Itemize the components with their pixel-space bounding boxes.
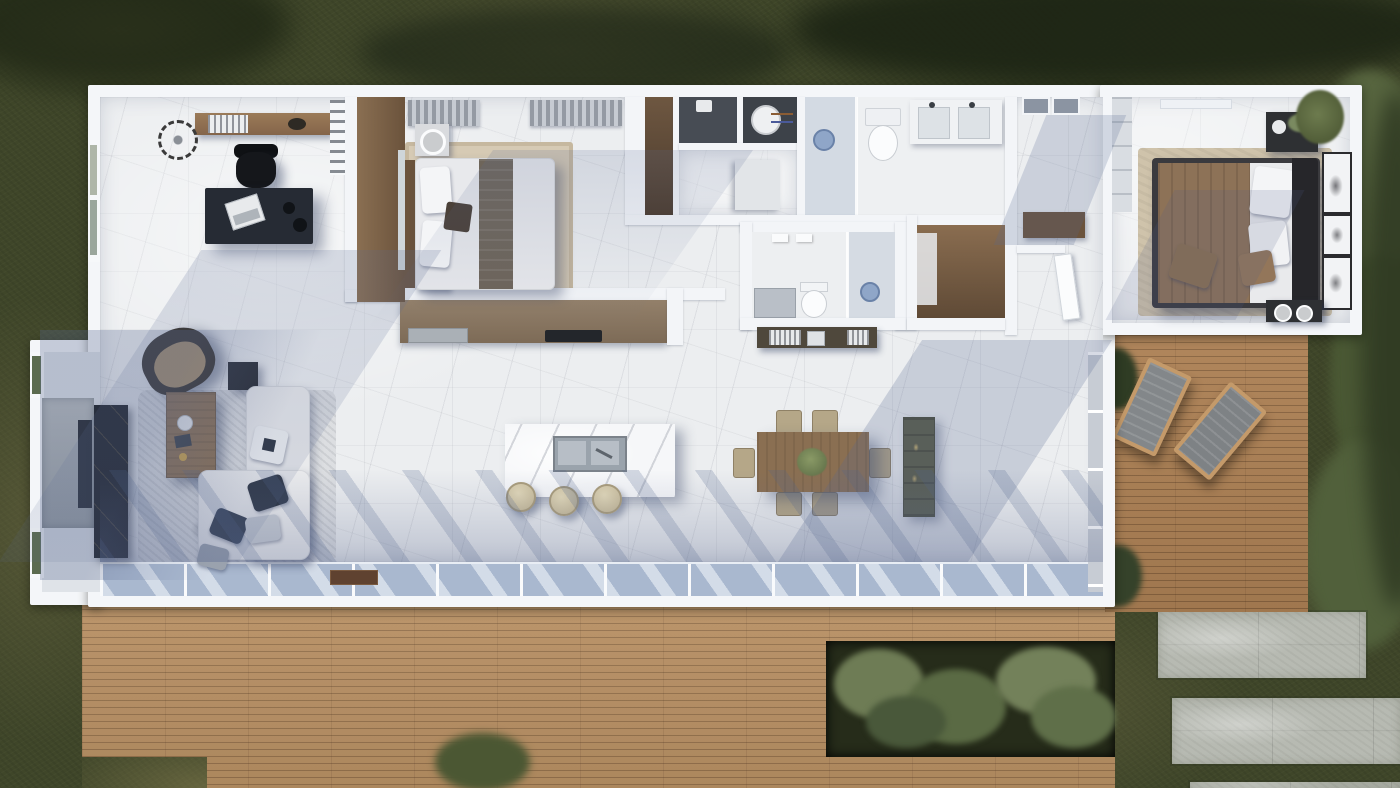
east-glass-wall	[1088, 352, 1103, 592]
skylight-1	[1022, 97, 1050, 115]
west-window-glass-2	[32, 532, 41, 574]
black-marble-cabinet	[94, 405, 128, 558]
vanity-sink-1	[918, 107, 950, 139]
shower-zone-2	[848, 232, 895, 318]
table-bowl	[177, 415, 193, 431]
guest-headboard	[405, 160, 415, 288]
double-vanity	[910, 100, 1002, 144]
television	[78, 420, 92, 508]
ornamental-grass-clump	[1031, 686, 1116, 748]
console-books-2	[847, 330, 869, 345]
wall-kitchen-east	[667, 288, 683, 345]
office-window-glass-1	[90, 145, 97, 195]
table-candle	[179, 453, 187, 461]
vanity-sink-2	[958, 107, 990, 139]
washing-machine	[751, 105, 781, 135]
mirror-light-1	[772, 234, 788, 242]
table-centerpiece	[797, 448, 827, 476]
wall-bedroom-east	[625, 97, 645, 215]
bed-tray	[443, 201, 473, 232]
wall-bath1-west	[797, 97, 805, 215]
dining-table	[757, 432, 869, 492]
shower-head-1	[813, 129, 835, 151]
toilet-bowl-2	[801, 290, 827, 318]
guest-bed	[415, 158, 555, 290]
sofa-pillow-white	[249, 425, 289, 465]
wall-bath2-west	[740, 222, 752, 330]
dining-chair-1	[776, 410, 802, 434]
ornamental-grass-clump	[866, 696, 946, 748]
laptop	[225, 193, 266, 230]
mirror-light-2	[796, 234, 812, 242]
ornamental-grass-planter	[826, 641, 1115, 757]
dining-chair-6	[869, 448, 891, 478]
vanity-2	[754, 288, 796, 318]
master-accent-pillow-2	[1237, 249, 1276, 286]
master-pillow-1	[1249, 165, 1295, 218]
wall-ornament	[158, 120, 198, 160]
storage-appliance	[735, 160, 780, 210]
desk-accessory-2	[293, 218, 307, 232]
second-bathroom	[752, 232, 895, 318]
master-headboard	[1292, 158, 1318, 308]
master-plant	[1296, 90, 1344, 144]
guest-nightstand-1	[415, 124, 449, 156]
guest-lamp-1	[420, 129, 446, 155]
bar-stool-1	[506, 482, 536, 512]
west-window-frame-1	[30, 352, 44, 398]
office-window-glass-2	[90, 200, 97, 255]
cooktop	[545, 330, 602, 342]
office-desk	[205, 188, 313, 244]
doormat	[330, 570, 378, 585]
closet-floor-strip	[917, 233, 937, 305]
ceiling-light-strip	[1160, 99, 1232, 109]
dining-chair-2	[812, 410, 838, 434]
bar-stool-3	[592, 484, 622, 514]
laundry-shelf	[771, 121, 793, 123]
west-window-glass-1	[32, 356, 41, 394]
shower-head-2	[860, 282, 880, 302]
concrete-paver-1	[1158, 612, 1366, 678]
bar-stool-2	[549, 486, 579, 516]
hall-cabinet	[1023, 212, 1085, 238]
laundry-room	[743, 97, 797, 143]
wall-bath2-north	[740, 222, 907, 232]
dining-chair-3	[776, 492, 802, 516]
office-book-niche	[330, 100, 345, 175]
wall-closet-west	[907, 215, 917, 330]
pillow-accent	[262, 438, 276, 452]
office-shelf	[195, 113, 330, 135]
concrete-paver-3	[1190, 782, 1400, 788]
olive-cabinet	[903, 417, 935, 517]
curtain-2	[530, 100, 622, 126]
office-window-frame	[88, 140, 100, 262]
vase	[1272, 120, 1286, 134]
linen-closet	[645, 97, 673, 215]
art-frame-2	[1322, 214, 1352, 256]
master-wardrobe	[1112, 97, 1132, 212]
wall-office-bedroom	[345, 97, 357, 302]
concrete-paver-2	[1172, 698, 1400, 764]
west-window-frame-2	[30, 528, 44, 578]
master-nightstand-2	[1266, 300, 1322, 322]
sofa-pillow-gray-1	[244, 514, 281, 544]
kitchen-counter	[400, 300, 667, 343]
wall-bath2-east	[895, 222, 907, 330]
art-frame-1	[1322, 152, 1352, 214]
skylight-2	[1052, 97, 1080, 115]
shower-zone-1	[805, 97, 857, 215]
main-bathroom	[805, 97, 1005, 215]
console-sideboard	[757, 327, 877, 348]
grass-tuft	[435, 733, 530, 788]
wall-closet-south	[907, 318, 1005, 330]
faucet-1	[929, 102, 935, 108]
laptop-keyboard	[233, 208, 261, 226]
faucet-2	[969, 102, 975, 108]
wall-entry-stub	[1017, 245, 1065, 253]
shower-glass-1	[855, 97, 858, 215]
tv-stone-wall	[42, 398, 94, 528]
master-lamp-1	[1274, 304, 1292, 322]
desk-accessory-1	[283, 202, 295, 214]
wall-utility-3	[679, 143, 797, 150]
console-frame	[807, 331, 825, 346]
coffee-table	[166, 392, 216, 478]
console-books-1	[769, 330, 801, 345]
powder-room	[679, 97, 737, 143]
dining-chair-4	[812, 492, 838, 516]
powder-sink	[696, 100, 712, 112]
guest-wardrobe	[357, 97, 405, 302]
island-sink-unit	[553, 436, 627, 472]
shower-glass-2	[846, 232, 849, 318]
shelf-books	[208, 115, 248, 133]
sink-basin-1	[558, 441, 586, 465]
walk-in-closet	[917, 225, 1005, 318]
floor-plan-scene	[0, 0, 1400, 788]
laundry-shelf	[771, 113, 793, 115]
south-glass-wall	[100, 562, 1103, 596]
dining-chair-5	[733, 448, 755, 478]
wardrobe-mirror	[398, 150, 405, 270]
office-chair	[236, 152, 276, 188]
art-frame-3	[1322, 256, 1352, 310]
storage-room-floor	[679, 150, 797, 215]
wall-hallway-west	[1005, 97, 1017, 335]
toilet-tank-1	[865, 108, 901, 126]
counter-appliance	[408, 328, 468, 343]
table-book	[174, 434, 192, 449]
curtain-1	[408, 100, 480, 126]
lawn-notch	[82, 757, 207, 788]
master-lamp-2	[1296, 305, 1313, 322]
master-bed	[1152, 158, 1320, 308]
toilet-bowl-1	[868, 125, 898, 161]
bed-runner	[479, 159, 513, 289]
shelf-ornament	[288, 118, 306, 130]
